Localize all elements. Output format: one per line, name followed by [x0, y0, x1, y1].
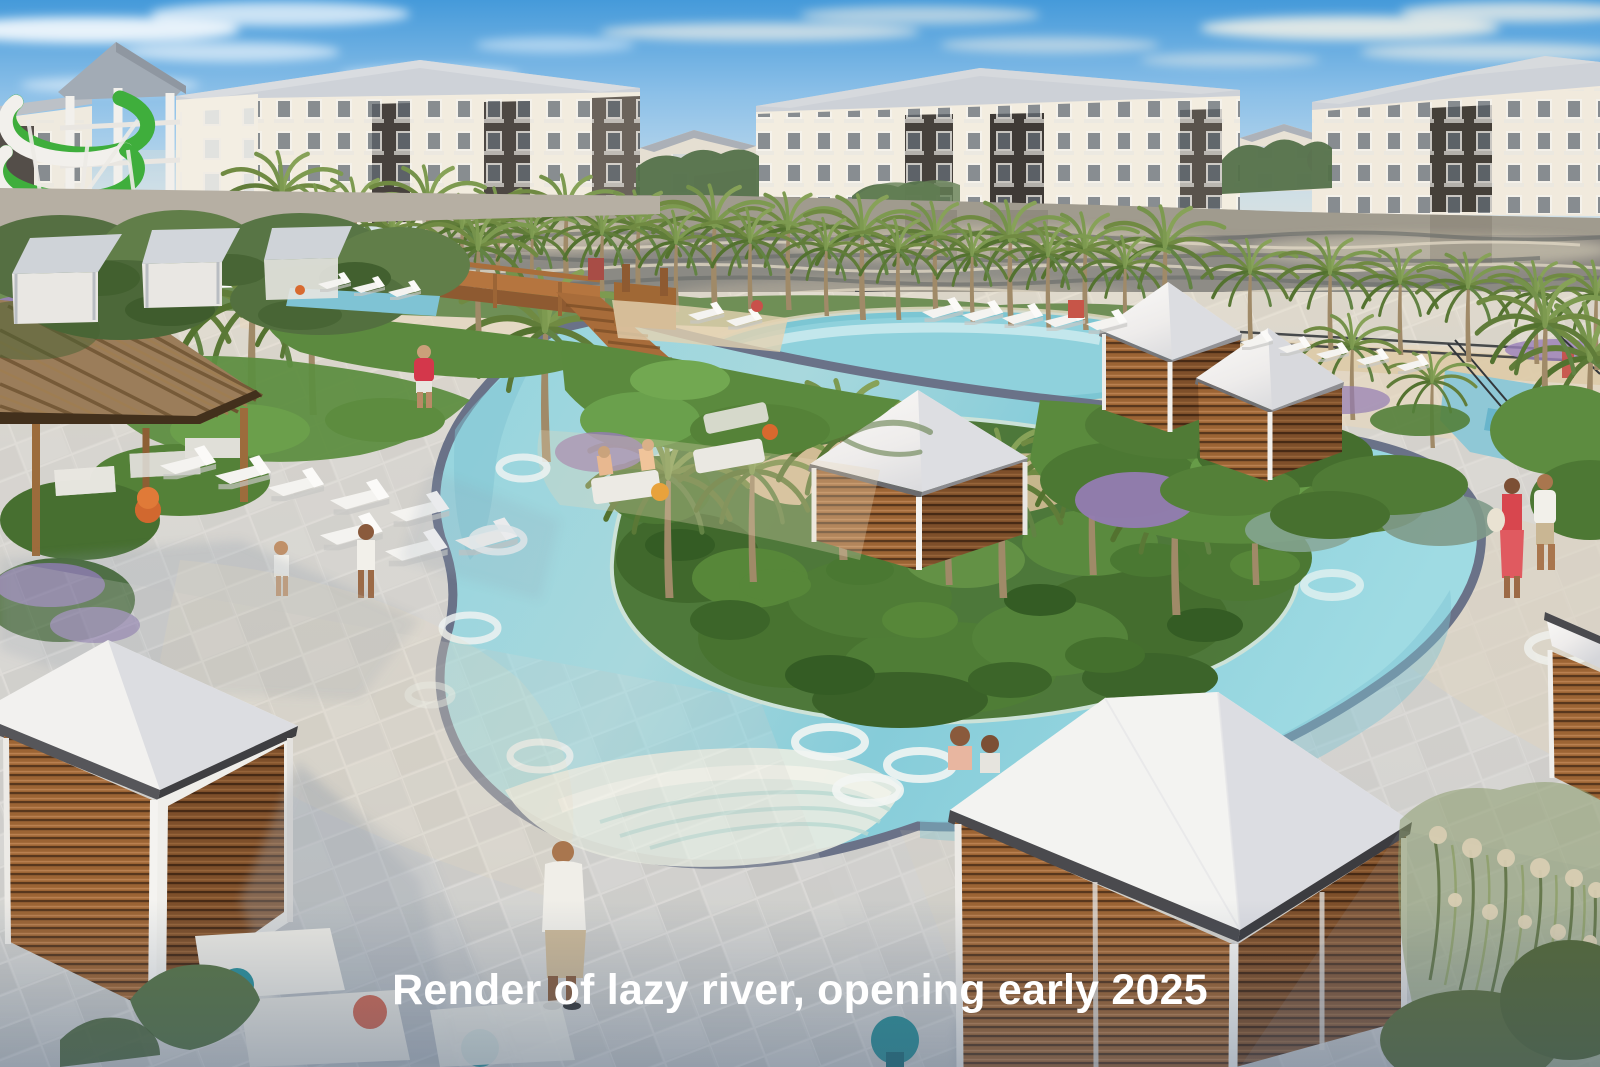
svg-text:Render of lazy river, opening: Render of lazy river, opening early 2025: [392, 966, 1208, 1014]
